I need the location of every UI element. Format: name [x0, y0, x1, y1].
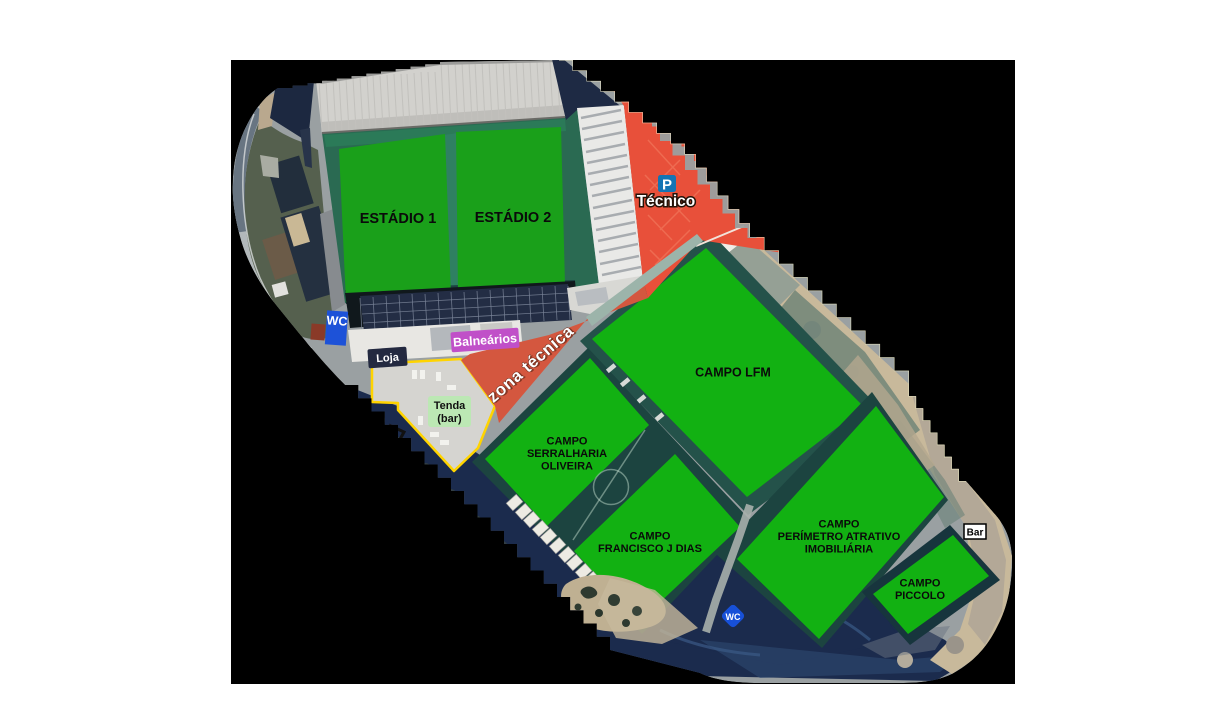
svg-text:IMOBILIÁRIA: IMOBILIÁRIA — [805, 542, 873, 555]
svg-text:CAMPO LFM: CAMPO LFM — [695, 365, 771, 379]
svg-text:FRANCISCO J DIAS: FRANCISCO J DIAS — [598, 543, 702, 555]
svg-text:CAMPO: CAMPO — [900, 578, 941, 590]
svg-text:SERRALHARIA: SERRALHARIA — [527, 448, 607, 460]
svg-text:ESTÁDIO 1: ESTÁDIO 1 — [360, 210, 437, 227]
svg-text:WC: WC — [726, 612, 741, 622]
svg-text:PERÍMETRO ATRATIVO: PERÍMETRO ATRATIVO — [778, 530, 901, 543]
svg-text:PICCOLO: PICCOLO — [895, 590, 946, 602]
svg-text:OLIVEIRA: OLIVEIRA — [541, 460, 593, 472]
svg-text:ESTÁDIO 2: ESTÁDIO 2 — [475, 209, 552, 226]
svg-text:Loja: Loja — [376, 352, 400, 366]
svg-text:CAMPO: CAMPO — [819, 518, 860, 530]
svg-text:Bar: Bar — [967, 528, 984, 539]
svg-text:(bar): (bar) — [437, 413, 462, 425]
svg-text:Técnico: Técnico — [637, 193, 696, 210]
svg-text:WC: WC — [326, 313, 348, 328]
svg-text:CAMPO: CAMPO — [547, 435, 588, 447]
svg-text:Tenda: Tenda — [434, 400, 466, 412]
svg-text:CAMPO: CAMPO — [630, 531, 671, 543]
svg-text:P: P — [662, 177, 672, 194]
